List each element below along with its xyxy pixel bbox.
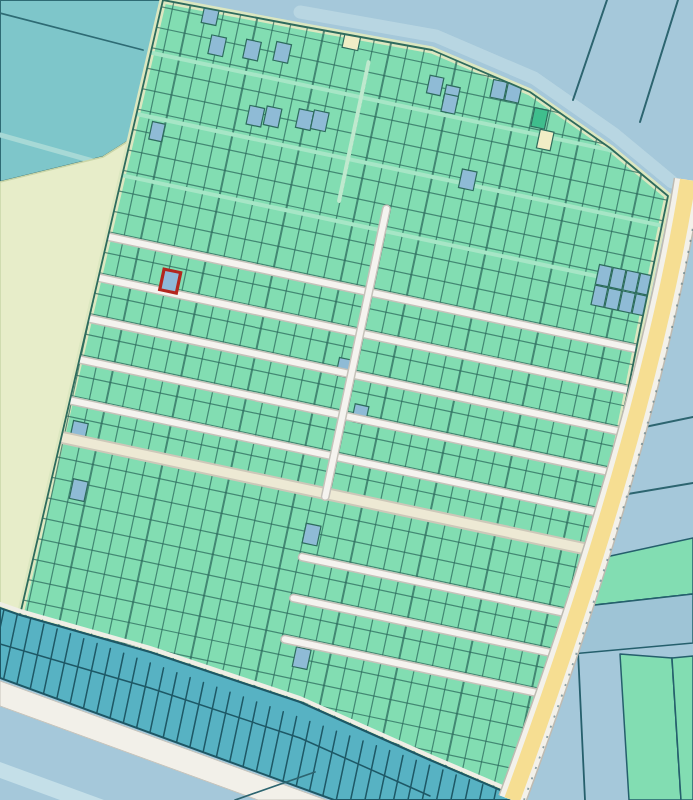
blue-parcel [458, 169, 477, 191]
blue-parcel [246, 105, 265, 127]
blue-parcel [273, 42, 292, 64]
selected-parcel[interactable] [160, 269, 181, 293]
blue-parcel [243, 39, 262, 61]
blue-parcel [302, 523, 321, 546]
blue-parcel [208, 35, 227, 57]
blue-parcel [426, 75, 443, 96]
blue-parcel [292, 647, 311, 670]
selection-local [160, 269, 181, 293]
map-viewport[interactable] [0, 0, 693, 800]
blue-parcel [441, 94, 458, 115]
cadastral-map[interactable] [0, 0, 693, 800]
corner-green-strip-1 [620, 654, 681, 800]
blue-parcel [311, 110, 330, 132]
blue-parcel [69, 479, 88, 502]
selection-group [160, 269, 181, 293]
blue-parcel [263, 106, 282, 128]
